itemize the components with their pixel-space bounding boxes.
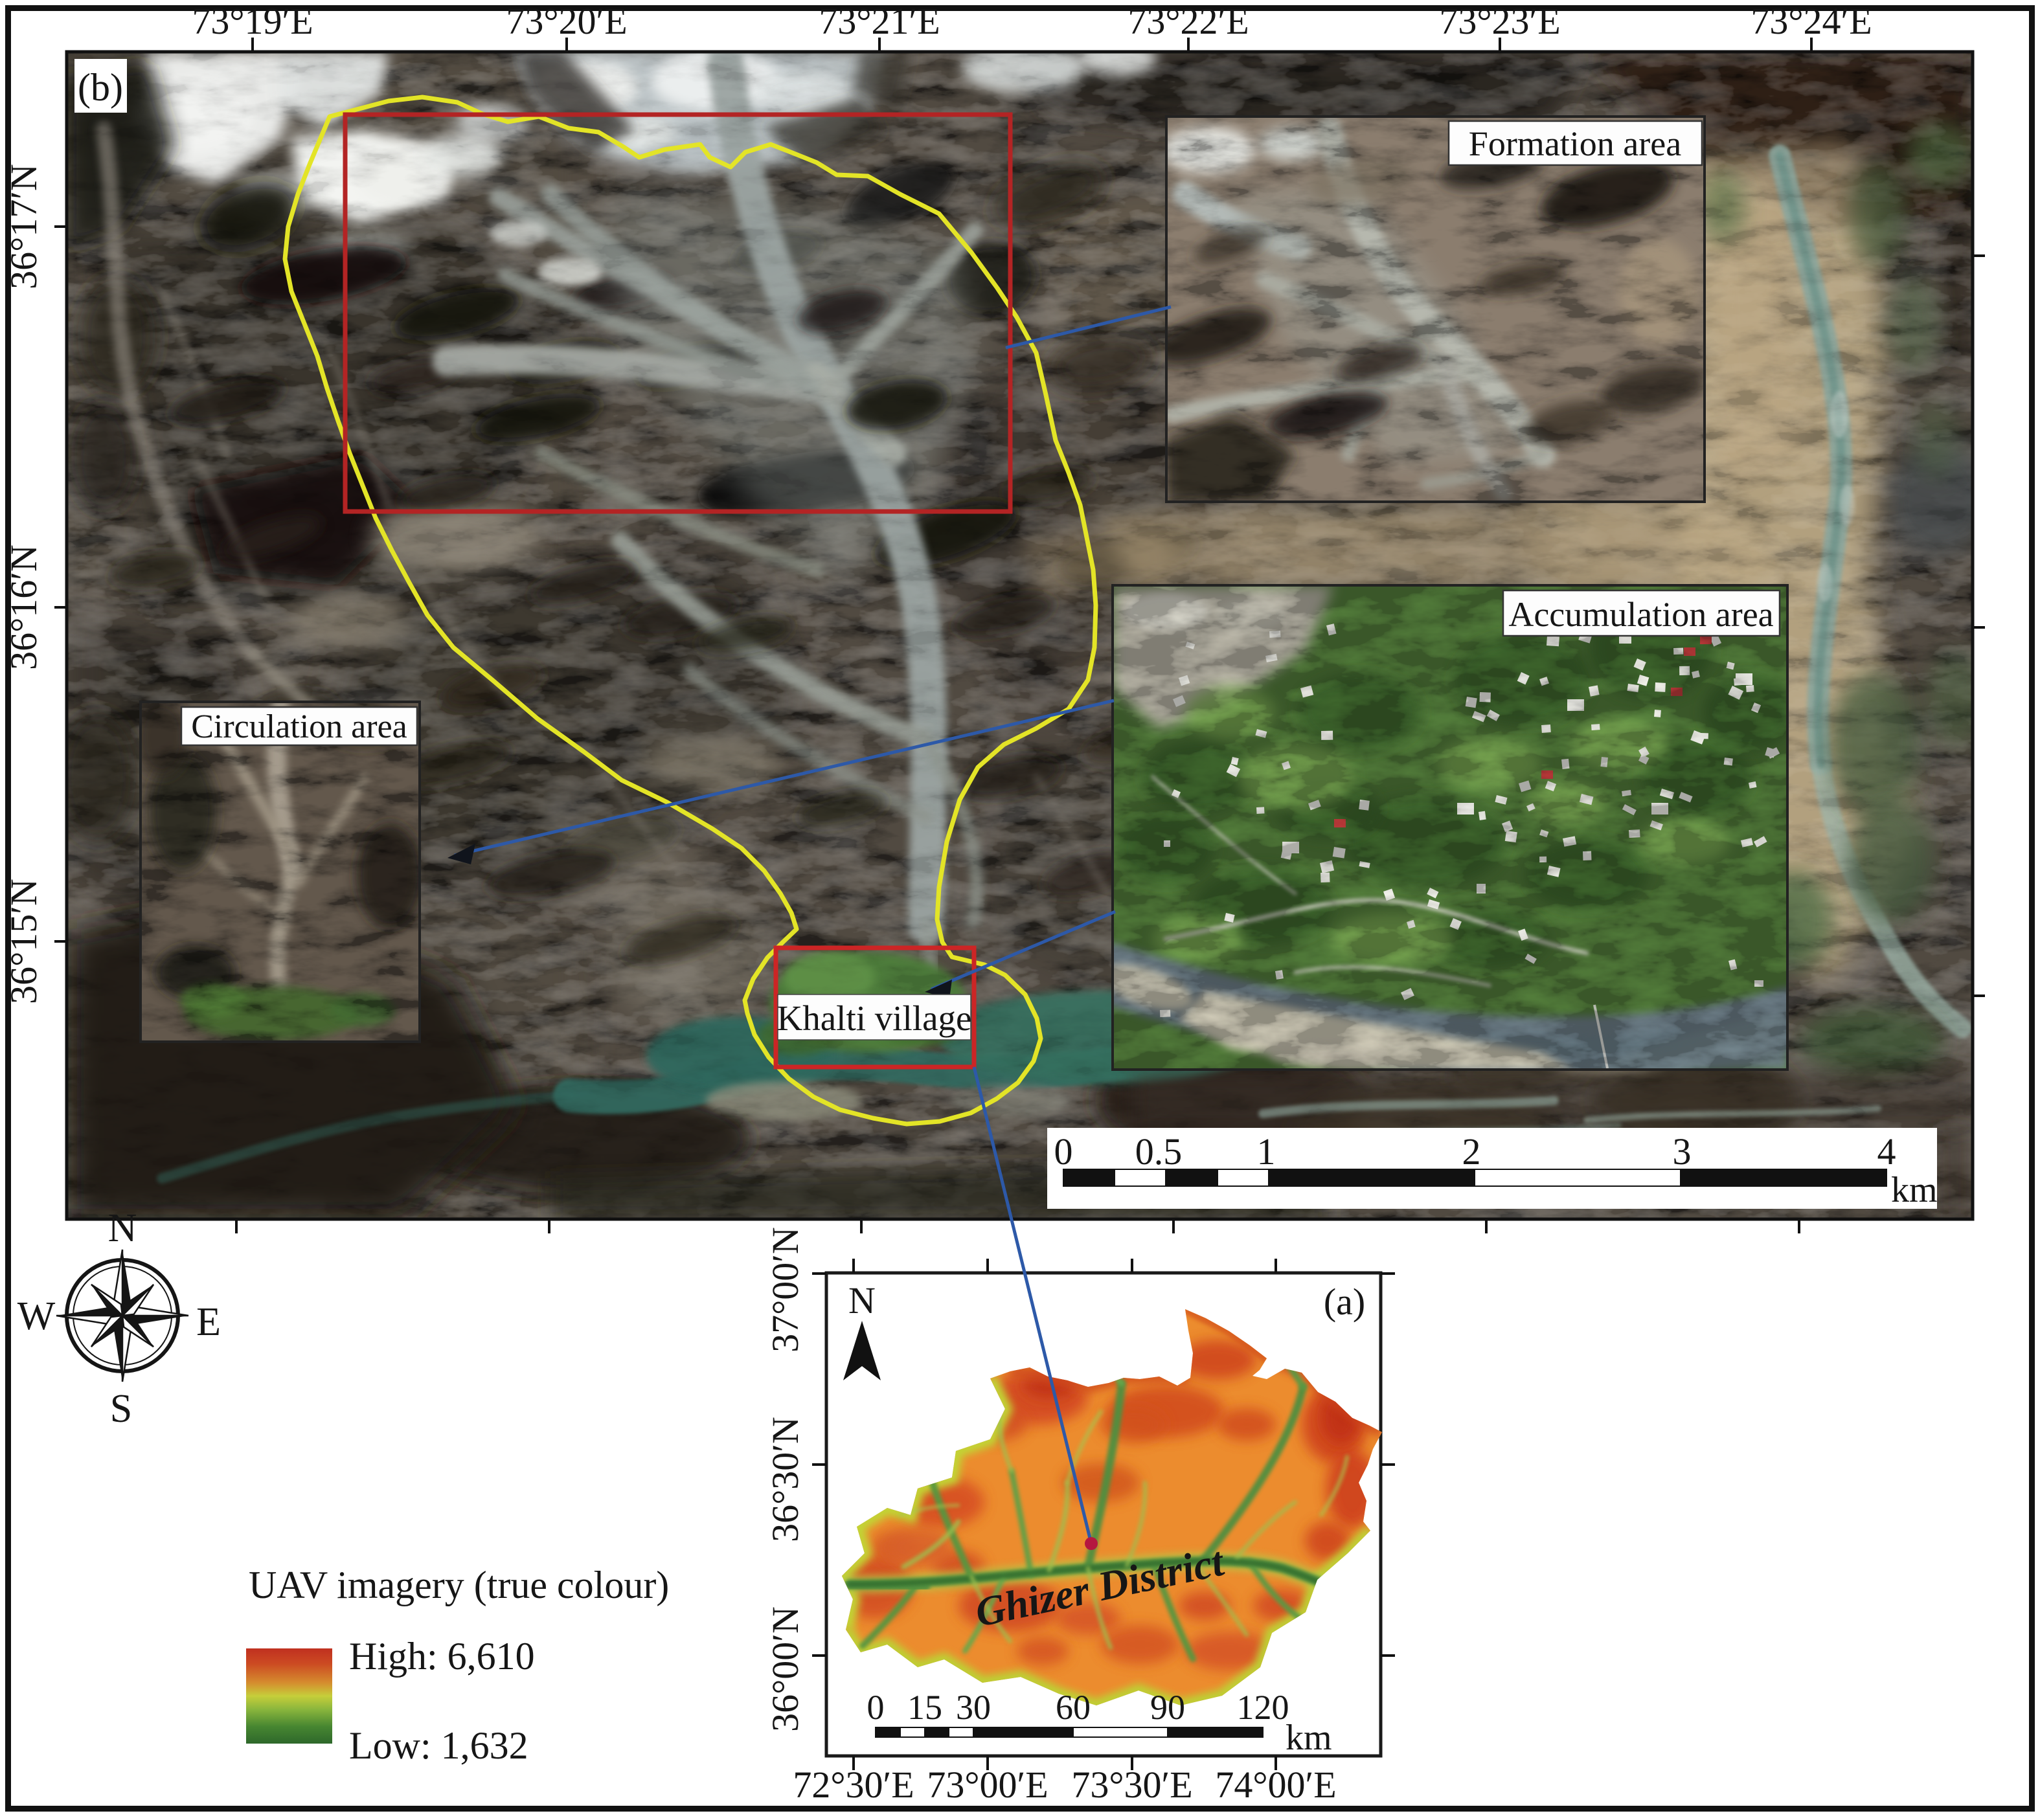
svg-text:S: S — [110, 1387, 132, 1431]
svg-text:km: km — [1891, 1170, 1938, 1210]
svg-text:N: N — [848, 1279, 876, 1321]
svg-text:37°00′N: 37°00′N — [764, 1227, 806, 1353]
svg-text:(a): (a) — [1324, 1281, 1365, 1323]
svg-text:0: 0 — [1054, 1130, 1073, 1173]
svg-text:30: 30 — [956, 1688, 991, 1727]
svg-text:Accumulation area: Accumulation area — [1508, 595, 1773, 634]
svg-text:Formation area: Formation area — [1469, 124, 1681, 163]
svg-text:1: 1 — [1257, 1130, 1276, 1173]
svg-text:Low: 1,632: Low: 1,632 — [349, 1724, 528, 1767]
svg-text:E: E — [196, 1300, 221, 1344]
svg-text:36°30′N: 36°30′N — [764, 1417, 806, 1542]
svg-text:73°22′E: 73°22′E — [1128, 0, 1249, 42]
svg-text:High: 6,610: High: 6,610 — [349, 1635, 535, 1678]
svg-text:73°19′E: 73°19′E — [192, 0, 313, 42]
svg-text:3: 3 — [1673, 1130, 1692, 1173]
svg-text:73°00′E: 73°00′E — [927, 1764, 1048, 1806]
svg-text:Circulation area: Circulation area — [191, 708, 407, 745]
svg-text:73°20′E: 73°20′E — [506, 0, 627, 42]
svg-text:36°15′N: 36°15′N — [3, 879, 45, 1004]
svg-text:120: 120 — [1237, 1688, 1289, 1727]
svg-text:90: 90 — [1150, 1688, 1185, 1727]
svg-text:km: km — [1286, 1718, 1332, 1758]
svg-text:60: 60 — [1056, 1688, 1091, 1727]
svg-text:73°30′E: 73°30′E — [1071, 1764, 1192, 1806]
svg-text:Khalti village: Khalti village — [777, 998, 972, 1038]
svg-text:4: 4 — [1877, 1130, 1896, 1173]
svg-text:0: 0 — [867, 1688, 885, 1727]
svg-text:(b): (b) — [78, 66, 123, 109]
svg-text:N: N — [108, 1206, 137, 1250]
svg-text:72°30′E: 72°30′E — [793, 1764, 914, 1806]
svg-text:73°21′E: 73°21′E — [819, 0, 940, 42]
svg-text:36°00′N: 36°00′N — [764, 1606, 806, 1732]
svg-text:36°16′N: 36°16′N — [3, 545, 45, 670]
svg-text:73°24′E: 73°24′E — [1751, 0, 1872, 42]
svg-text:73°23′E: 73°23′E — [1439, 0, 1560, 42]
svg-text:36°17′N: 36°17′N — [3, 164, 45, 289]
svg-text:W: W — [17, 1294, 56, 1338]
svg-text:UAV imagery (true colour): UAV imagery (true colour) — [249, 1564, 669, 1606]
svg-text:0.5: 0.5 — [1135, 1130, 1183, 1173]
svg-text:15: 15 — [907, 1688, 942, 1727]
svg-text:2: 2 — [1462, 1130, 1481, 1173]
svg-text:74°00′E: 74°00′E — [1215, 1764, 1336, 1806]
